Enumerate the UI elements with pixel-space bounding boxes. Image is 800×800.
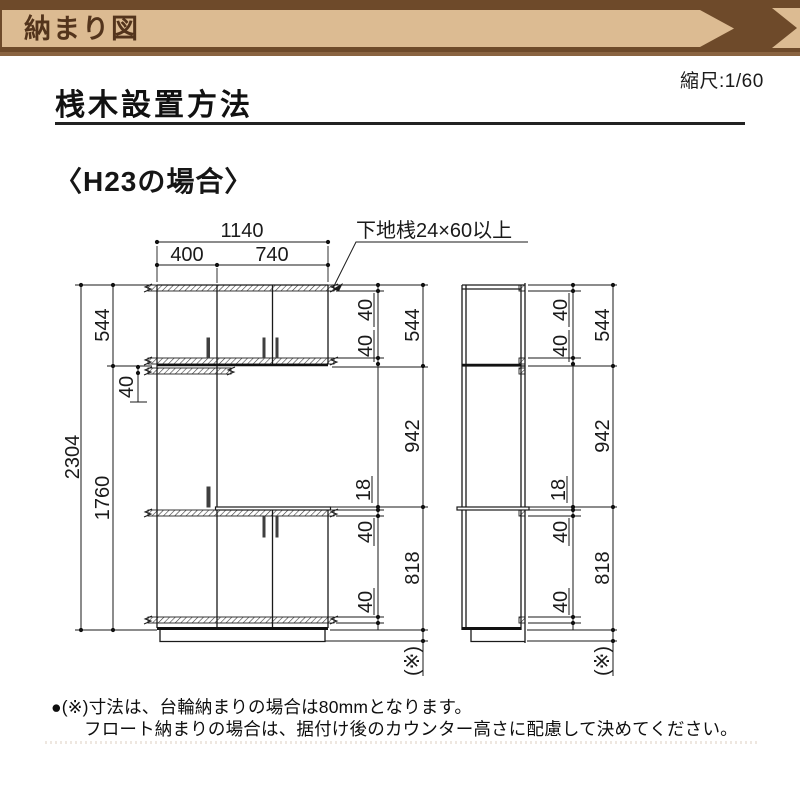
dim-batten-f2: 40 bbox=[355, 335, 377, 357]
batten-note-label: 下地桟24×60以上 bbox=[356, 219, 512, 242]
dim-asterisk-f: (※) bbox=[402, 646, 424, 676]
fine-print-noise bbox=[45, 741, 757, 744]
side-view-outline bbox=[457, 283, 529, 643]
header-banner: 納まり図 bbox=[0, 0, 800, 57]
page-title: 桟木設置方法 bbox=[55, 80, 253, 124]
dim-batten-f1: 40 bbox=[355, 299, 377, 321]
dim-total-width: 1140 bbox=[220, 220, 263, 242]
break-marks bbox=[144, 284, 338, 624]
scale-note: 縮尺:1/60 bbox=[680, 66, 764, 93]
dim-batten-left: 40 bbox=[116, 376, 138, 398]
dim-batten-s2: 40 bbox=[550, 335, 572, 357]
dim-left-width: 400 bbox=[170, 244, 203, 266]
dim-lower-height: 1760 bbox=[92, 476, 114, 521]
front-view-outline bbox=[157, 285, 331, 642]
title-rule bbox=[55, 122, 745, 125]
dimension-lines bbox=[81, 242, 613, 676]
dim-middle-height-f: 942 bbox=[402, 419, 424, 452]
leader-line bbox=[333, 242, 528, 288]
dim-batten-s3: 40 bbox=[550, 521, 572, 543]
dim-upper-height-s: 544 bbox=[592, 308, 614, 341]
dimension-dots bbox=[81, 242, 613, 641]
dim-batten-f3: 40 bbox=[355, 521, 377, 543]
dim-batten-s4: 40 bbox=[550, 591, 572, 613]
dim-right-width: 740 bbox=[255, 244, 288, 266]
dim-batten-s1: 40 bbox=[550, 299, 572, 321]
dim-upper-height-left: 544 bbox=[92, 308, 114, 341]
case-heading: 〈H23の場合〉 bbox=[54, 160, 253, 200]
dim-asterisk-s: (※) bbox=[592, 646, 614, 676]
banner-title: 納まり図 bbox=[24, 13, 140, 44]
dim-base-height-s: 818 bbox=[592, 551, 614, 584]
dim-counter-thickness-s: 18 bbox=[548, 479, 570, 501]
footnote: ●(※)寸法は、台輪納まりの場合は80mmとなります。 フロート納まりの場合は、… bbox=[51, 696, 738, 740]
dim-batten-f4: 40 bbox=[355, 591, 377, 613]
extension-lines bbox=[75, 246, 617, 641]
footnote-line1: ●(※)寸法は、台輪納まりの場合は80mmとなります。 bbox=[51, 696, 738, 718]
dim-overall-height: 2304 bbox=[62, 435, 84, 480]
batten-strips bbox=[148, 285, 525, 623]
installation-drawing: 1140 400 740 下地桟24×60以上 2304 544 1760 40… bbox=[0, 205, 800, 695]
banner-underline bbox=[0, 52, 800, 56]
dim-middle-height-s: 942 bbox=[592, 419, 614, 452]
dim-counter-thickness-f: 18 bbox=[353, 479, 375, 501]
dim-base-height-f: 818 bbox=[402, 551, 424, 584]
footnote-line2: フロート納まりの場合は、据付け後のカウンター高さに配慮して決めてください。 bbox=[84, 718, 738, 740]
dim-upper-height-f: 544 bbox=[402, 308, 424, 341]
